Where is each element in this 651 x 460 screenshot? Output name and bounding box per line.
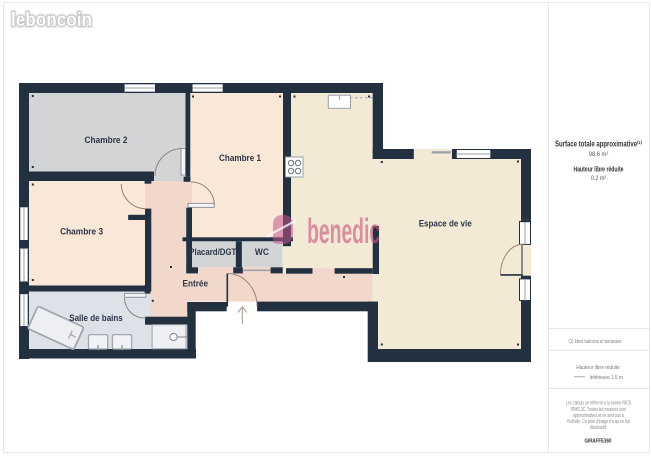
- svg-text:(1) Hors balcons et terrasses: (1) Hors balcons et terrasses: [569, 339, 622, 345]
- svg-text:Hauteur libre réduite: Hauteur libre réduite: [574, 167, 624, 174]
- svg-text:leboncoin: leboncoin: [11, 9, 92, 31]
- svg-text:98.6 m²: 98.6 m²: [589, 151, 609, 158]
- svg-text:Hauteur libre réduite: Hauteur libre réduite: [576, 365, 620, 371]
- svg-text:Inférieure 1.5 m: Inférieure 1.5 m: [590, 375, 624, 381]
- svg-text:benedic: benedic: [307, 212, 380, 251]
- svg-text:Espace de vie: Espace de vie: [419, 219, 472, 230]
- svg-text:Entrée: Entrée: [183, 279, 209, 290]
- svg-text:Les calculs se réfèrent à la n: Les calculs se réfèrent à la norme RICS: [566, 401, 632, 407]
- svg-text:Salle de bains: Salle de bains: [69, 313, 123, 323]
- svg-text:illustratif.: illustratif.: [590, 425, 607, 431]
- svg-text:Chambre 1: Chambre 1: [219, 153, 262, 164]
- svg-text:Chambre 2: Chambre 2: [85, 135, 128, 146]
- svg-text:0.2 m²: 0.2 m²: [591, 175, 607, 182]
- svg-text:GIRAFFE360: GIRAFFE360: [585, 439, 612, 445]
- svg-text:WC: WC: [255, 247, 269, 258]
- svg-text:Placard/DGT: Placard/DGT: [189, 247, 236, 257]
- svg-text:Surface totale approximative⁽¹: Surface totale approximative⁽¹⁾: [555, 140, 642, 149]
- svg-text:Chambre 3: Chambre 3: [60, 227, 103, 238]
